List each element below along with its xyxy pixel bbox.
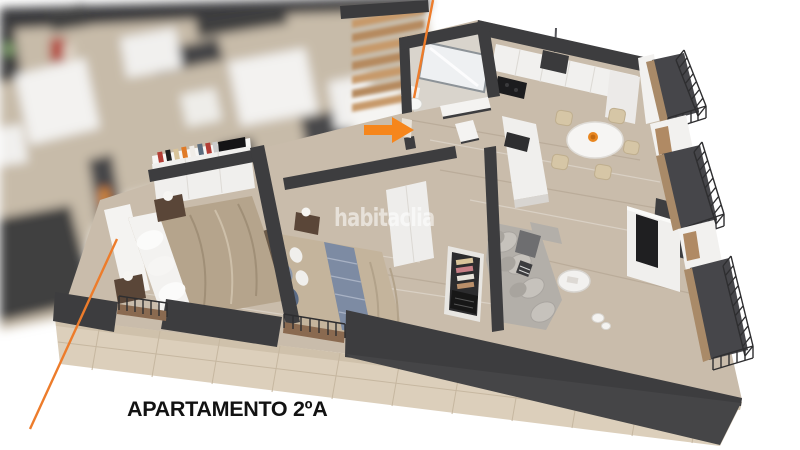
dining-chair: [623, 140, 640, 155]
apartment-label: APARTAMENTO 2ºA: [127, 397, 327, 422]
dining-chair: [608, 108, 626, 125]
dining-chair: [555, 110, 573, 127]
dining-chair: [594, 164, 612, 181]
floor-plan-render: habitaclia APARTAMENTO 2ºA: [0, 0, 800, 450]
dining-chair: [551, 154, 569, 171]
wall-entrance-stub: [404, 136, 416, 150]
tv-screen: [636, 214, 658, 268]
floor-vase: [592, 314, 604, 323]
floor-plan-scene: [0, 0, 800, 450]
shelf-unit: [444, 246, 484, 322]
balcony-1: [638, 50, 706, 130]
